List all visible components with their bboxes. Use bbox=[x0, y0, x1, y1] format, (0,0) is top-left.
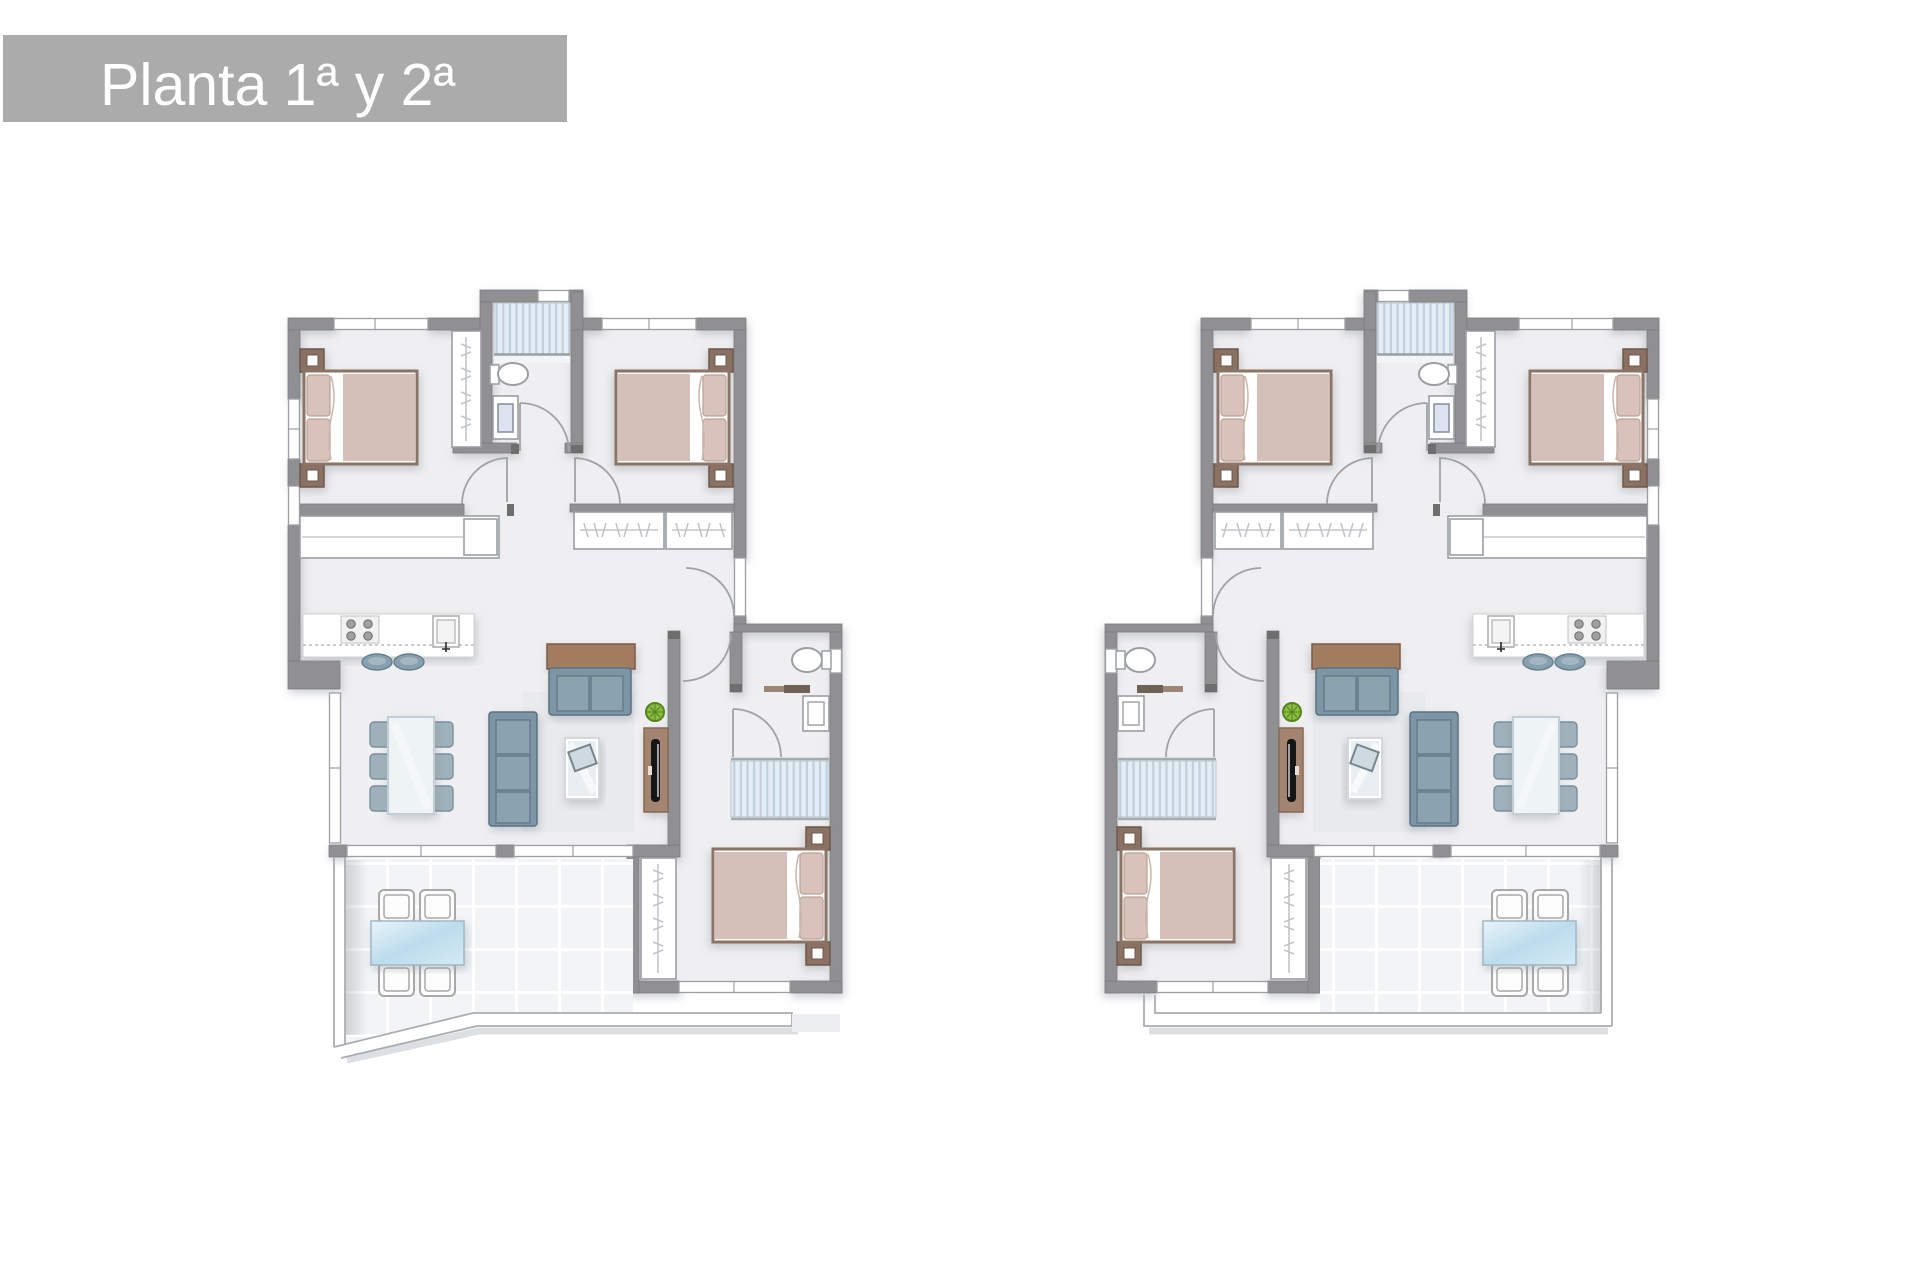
svg-text:Planta 1ª y 2ª: Planta 1ª y 2ª bbox=[100, 52, 456, 118]
